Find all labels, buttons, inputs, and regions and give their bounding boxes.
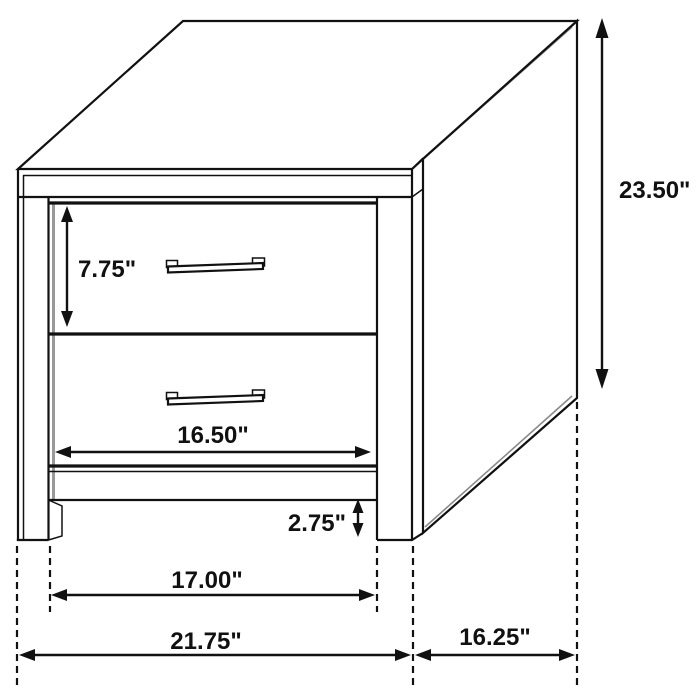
drawer-2-handle [167, 390, 265, 405]
overall-height-label: 23.50" [619, 177, 690, 204]
arrow-down-icon [61, 311, 73, 327]
arrow-left-icon [51, 589, 67, 601]
depth-label: 16.25" [459, 624, 530, 651]
dimension-drawer-height: 7.75" [61, 206, 136, 327]
arrow-right-icon [359, 589, 375, 601]
drawer-height-label: 7.75" [78, 256, 136, 283]
right-leg-bottom-edge [377, 533, 423, 540]
drawer-width-label: 16.50" [177, 422, 248, 449]
arrow-down-icon [353, 523, 364, 537]
drawer-1-handle [167, 258, 265, 273]
nightstand-dimension-diagram: 7.75" 16.50" 2.75" 17.00" 21 [0, 0, 700, 700]
overall-width-label: 21.75" [170, 628, 241, 655]
dimension-drawer-width: 16.50" [55, 422, 371, 458]
leg-span-label: 17.00" [171, 567, 242, 594]
arrow-up-icon [61, 206, 73, 222]
arrow-left-icon [55, 446, 71, 458]
arrow-down-icon [596, 369, 609, 389]
arrow-right-icon [559, 649, 575, 661]
handle-bar [168, 395, 263, 405]
handle-bar [168, 263, 263, 273]
arrow-left-icon [415, 649, 431, 661]
dimension-leg-span: 17.00" [51, 567, 375, 601]
arrow-up-icon [596, 18, 609, 38]
arrow-right-icon [395, 649, 411, 661]
arrow-left-icon [19, 649, 35, 661]
dimension-overall-height: 23.50" [596, 18, 691, 389]
dimension-base-clearance: 2.75" [288, 499, 364, 537]
base-clearance-label: 2.75" [288, 510, 346, 537]
dimension-depth: 16.25" [415, 624, 575, 661]
diagram-canvas: 7.75" 16.50" 2.75" 17.00" 21 [0, 0, 700, 700]
arrow-right-icon [355, 446, 371, 458]
dimension-overall-width: 21.75" [19, 628, 411, 661]
left-leg-inner-reveal [49, 500, 63, 540]
